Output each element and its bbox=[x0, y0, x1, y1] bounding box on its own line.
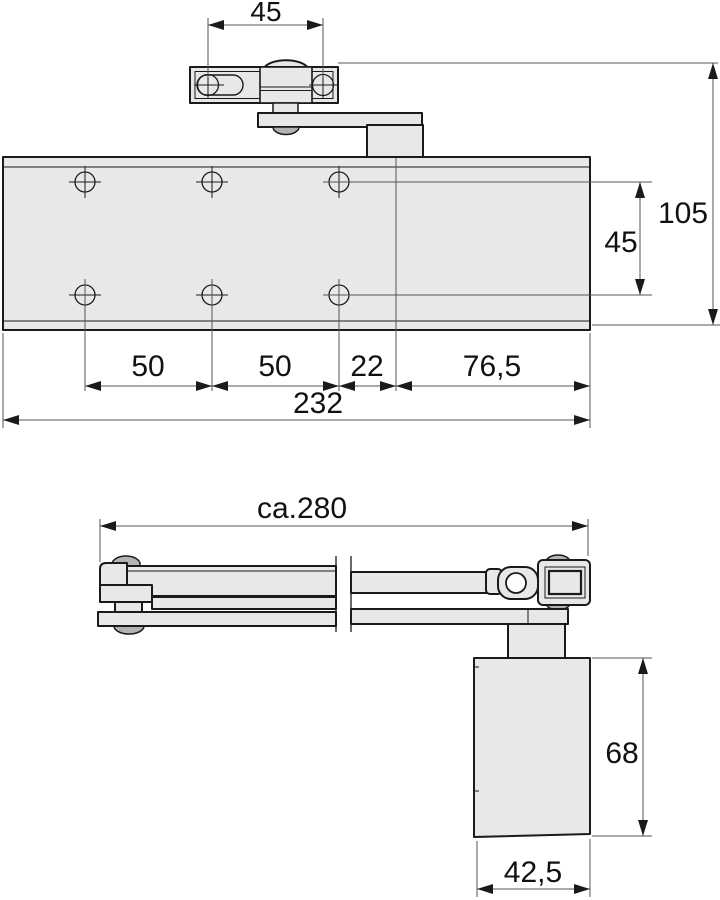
arm-lower-bar-right bbox=[351, 609, 568, 624]
top-view-body bbox=[474, 658, 590, 837]
arm-step-block bbox=[100, 585, 152, 602]
front-view-body bbox=[3, 157, 590, 330]
arm-small-block bbox=[115, 602, 142, 612]
body-housing bbox=[3, 157, 590, 330]
top-view-arm bbox=[98, 555, 590, 658]
spindle-housing bbox=[508, 624, 565, 658]
dim-label-50-left: 50 bbox=[131, 350, 164, 383]
drawing-svg: 45 105 45 50 50 22 76,5 232 bbox=[0, 0, 720, 900]
dim-label-22: 22 bbox=[350, 350, 383, 383]
arm-lower-bar-left bbox=[98, 612, 336, 626]
front-view: 45 105 45 50 50 22 76,5 232 bbox=[3, 0, 720, 428]
top-view: ca.280 68 42,5 bbox=[98, 492, 652, 897]
dim-label-45-top: 45 bbox=[250, 0, 281, 27]
dim-label-42-5: 42,5 bbox=[504, 856, 562, 889]
dim-label-76-5: 76,5 bbox=[463, 350, 521, 383]
body-housing-top bbox=[474, 658, 590, 837]
pivot-block bbox=[260, 67, 312, 103]
dim-label-105: 105 bbox=[658, 197, 708, 230]
dim-label-68: 68 bbox=[605, 737, 638, 770]
dim-label-232: 232 bbox=[293, 387, 343, 420]
front-view-mounting-bracket bbox=[190, 60, 338, 103]
arm-rod bbox=[351, 572, 491, 593]
elbow-pivot bbox=[506, 573, 526, 593]
door-closer-technical-drawing: 45 105 45 50 50 22 76,5 232 bbox=[0, 0, 720, 900]
arm-pivot-bulge bbox=[273, 127, 299, 135]
arm-shoe-block bbox=[367, 125, 423, 158]
dim-label-50-right: 50 bbox=[258, 350, 291, 383]
front-view-arm bbox=[258, 103, 423, 158]
arm-spindle bbox=[273, 103, 298, 113]
arm-middle-bar bbox=[152, 597, 336, 609]
dim-label-ca280: ca.280 bbox=[257, 492, 347, 525]
dim-label-45-right: 45 bbox=[604, 226, 637, 259]
